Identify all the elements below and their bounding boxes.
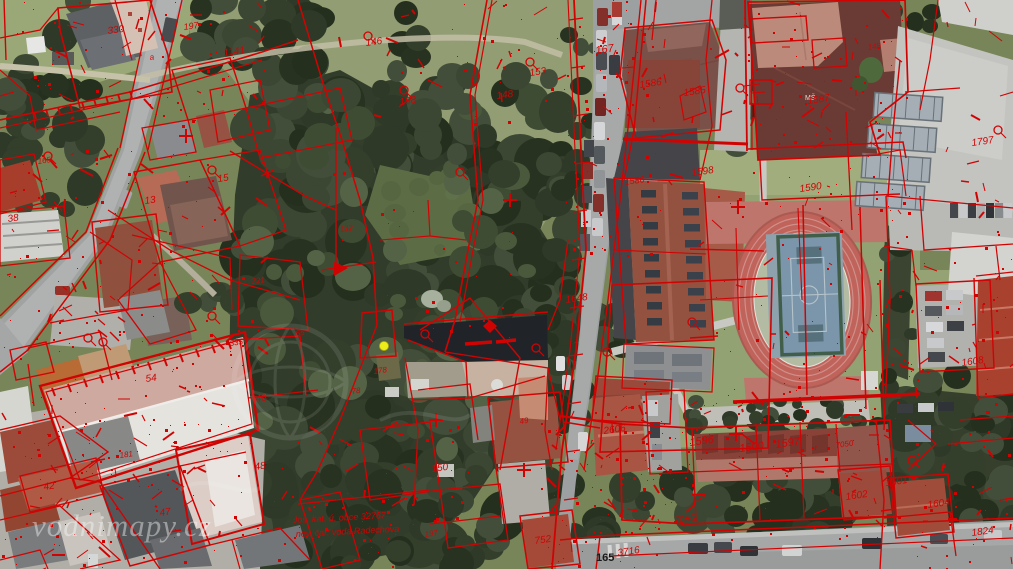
svg-text:165: 165 xyxy=(596,552,614,564)
svg-text:78: 78 xyxy=(351,386,362,396)
svg-text:148: 148 xyxy=(867,41,882,52)
svg-text:335: 335 xyxy=(229,337,244,348)
svg-text:42: 42 xyxy=(43,480,56,493)
svg-text:48: 48 xyxy=(254,460,267,473)
svg-text:197: 197 xyxy=(424,528,439,539)
svg-text:15: 15 xyxy=(217,172,230,185)
svg-text:178: 178 xyxy=(373,365,388,376)
svg-text:13: 13 xyxy=(144,194,157,207)
svg-text:vodnimapy.cz: vodnimapy.cz xyxy=(32,508,212,543)
svg-text:181: 181 xyxy=(119,449,133,460)
svg-text:49: 49 xyxy=(519,416,530,426)
svg-text:132: 132 xyxy=(339,223,354,234)
svg-text:38: 38 xyxy=(7,212,20,225)
svg-text:54: 54 xyxy=(145,372,158,385)
